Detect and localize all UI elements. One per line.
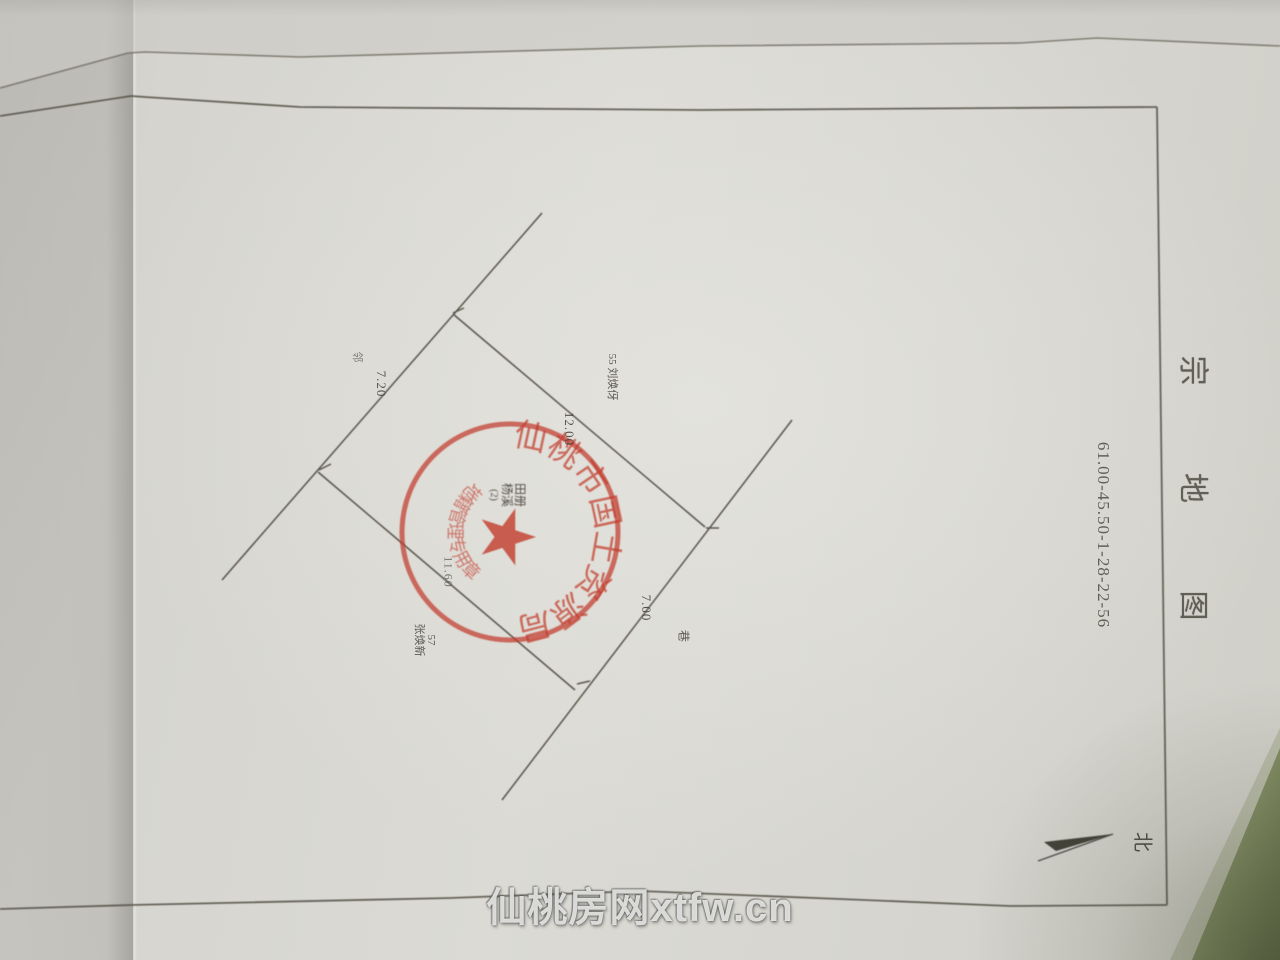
page-title: 宗 地 图 [1176,356,1208,661]
neighbor-label-right: 55 刘焕伢 [605,354,617,401]
neighbor-bottom-number: 57 [424,624,436,657]
side-mark-right: 巷 [677,630,690,642]
map-drawing-layer: 田册 杨溪 (2) 仙桃市国土资源局 地籍管理专用章 [0,0,1280,960]
north-label: 北 [1130,832,1152,852]
bottom-right-shadow [980,680,1280,960]
side-mark-left: 邻 [350,352,362,363]
photographed-parcel-map: 田册 杨溪 (2) 仙桃市国土资源局 地籍管理专用章 12.00 7.20 7.… [0,0,1280,960]
seal-outer-text: 仙桃市国土资源局 [511,416,626,646]
owner-text-line2: 杨溪 [500,483,515,507]
seal-center-text: 田册 杨溪 (2) [488,483,527,507]
frame-top-line [0,96,1157,116]
seal-star-icon [482,509,536,566]
sheet-number: 61.00-45.50-1-28-22-56 [1094,442,1112,628]
site-watermark: 仙桃房网xtfw.cn [486,875,793,933]
official-seal: 田册 杨溪 (2) 仙桃市国土资源局 地籍管理专用章 [402,416,625,646]
neighbor-bottom-name: 张焕新 [412,624,424,657]
dimension-label-top-left-edge: 7.20 [374,371,388,398]
dimension-label-top-right-edge: 12.00 [562,412,576,446]
dimension-label-bottom-left-edge: 11.60 [442,556,455,588]
corner-tick-bottom [577,681,590,684]
owner-text-line1: 田册 [513,483,527,507]
neighbor-label-bottom: 57 张焕新 [412,624,436,657]
owner-text-line3: (2) [488,489,499,501]
dimension-label-bottom-right-edge: 7.00 [639,595,653,622]
background-above-paper [0,0,1280,88]
